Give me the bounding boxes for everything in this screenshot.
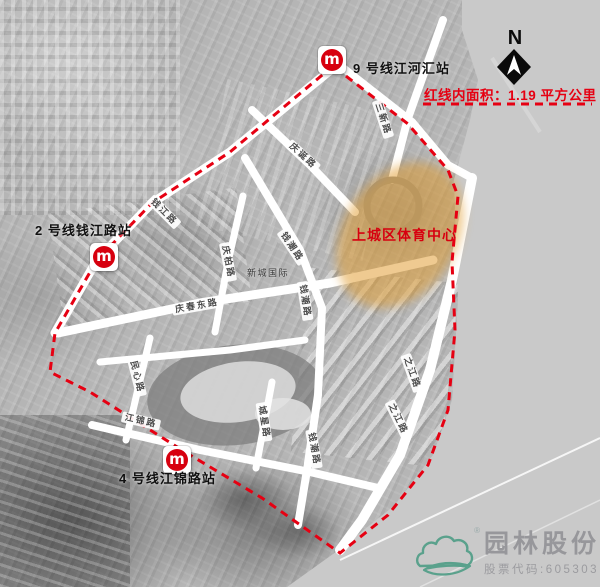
sports-center-label: 上城区体育中心 bbox=[352, 225, 457, 245]
company-logo-icon: ® bbox=[414, 528, 478, 580]
company-name: 园林股份 bbox=[484, 531, 600, 559]
metro-station-label-line2: 2 号线钱江路站 bbox=[35, 220, 132, 239]
metro-station-label-line9: 9 号线江河汇站 bbox=[353, 58, 450, 77]
red-line-boundary bbox=[50, 66, 458, 553]
watermark: ® 园林股份 股票代码:605303 bbox=[414, 528, 600, 580]
metro-station-icon-line2: m bbox=[90, 243, 118, 271]
registered-mark: ® bbox=[474, 526, 480, 535]
metro-logo-icon: m bbox=[321, 49, 343, 71]
place-label-xincheng: 新城国际 bbox=[247, 266, 289, 279]
north-arrow: N bbox=[492, 28, 536, 91]
compass-icon bbox=[496, 48, 532, 86]
metro-station-label-line4: 4 号线江锦路站 bbox=[119, 468, 216, 487]
map-canvas: 三新路 庆诞路 钱江路 钱潮路 庆柏路 庆春东路 民心路 江锦路 钱潮路 城星路… bbox=[0, 0, 600, 587]
metro-station-icon-line9: m bbox=[318, 46, 346, 74]
stock-code: 股票代码:605303 bbox=[484, 561, 600, 577]
metro-logo-icon: m bbox=[93, 246, 115, 268]
north-label: N bbox=[494, 28, 536, 48]
